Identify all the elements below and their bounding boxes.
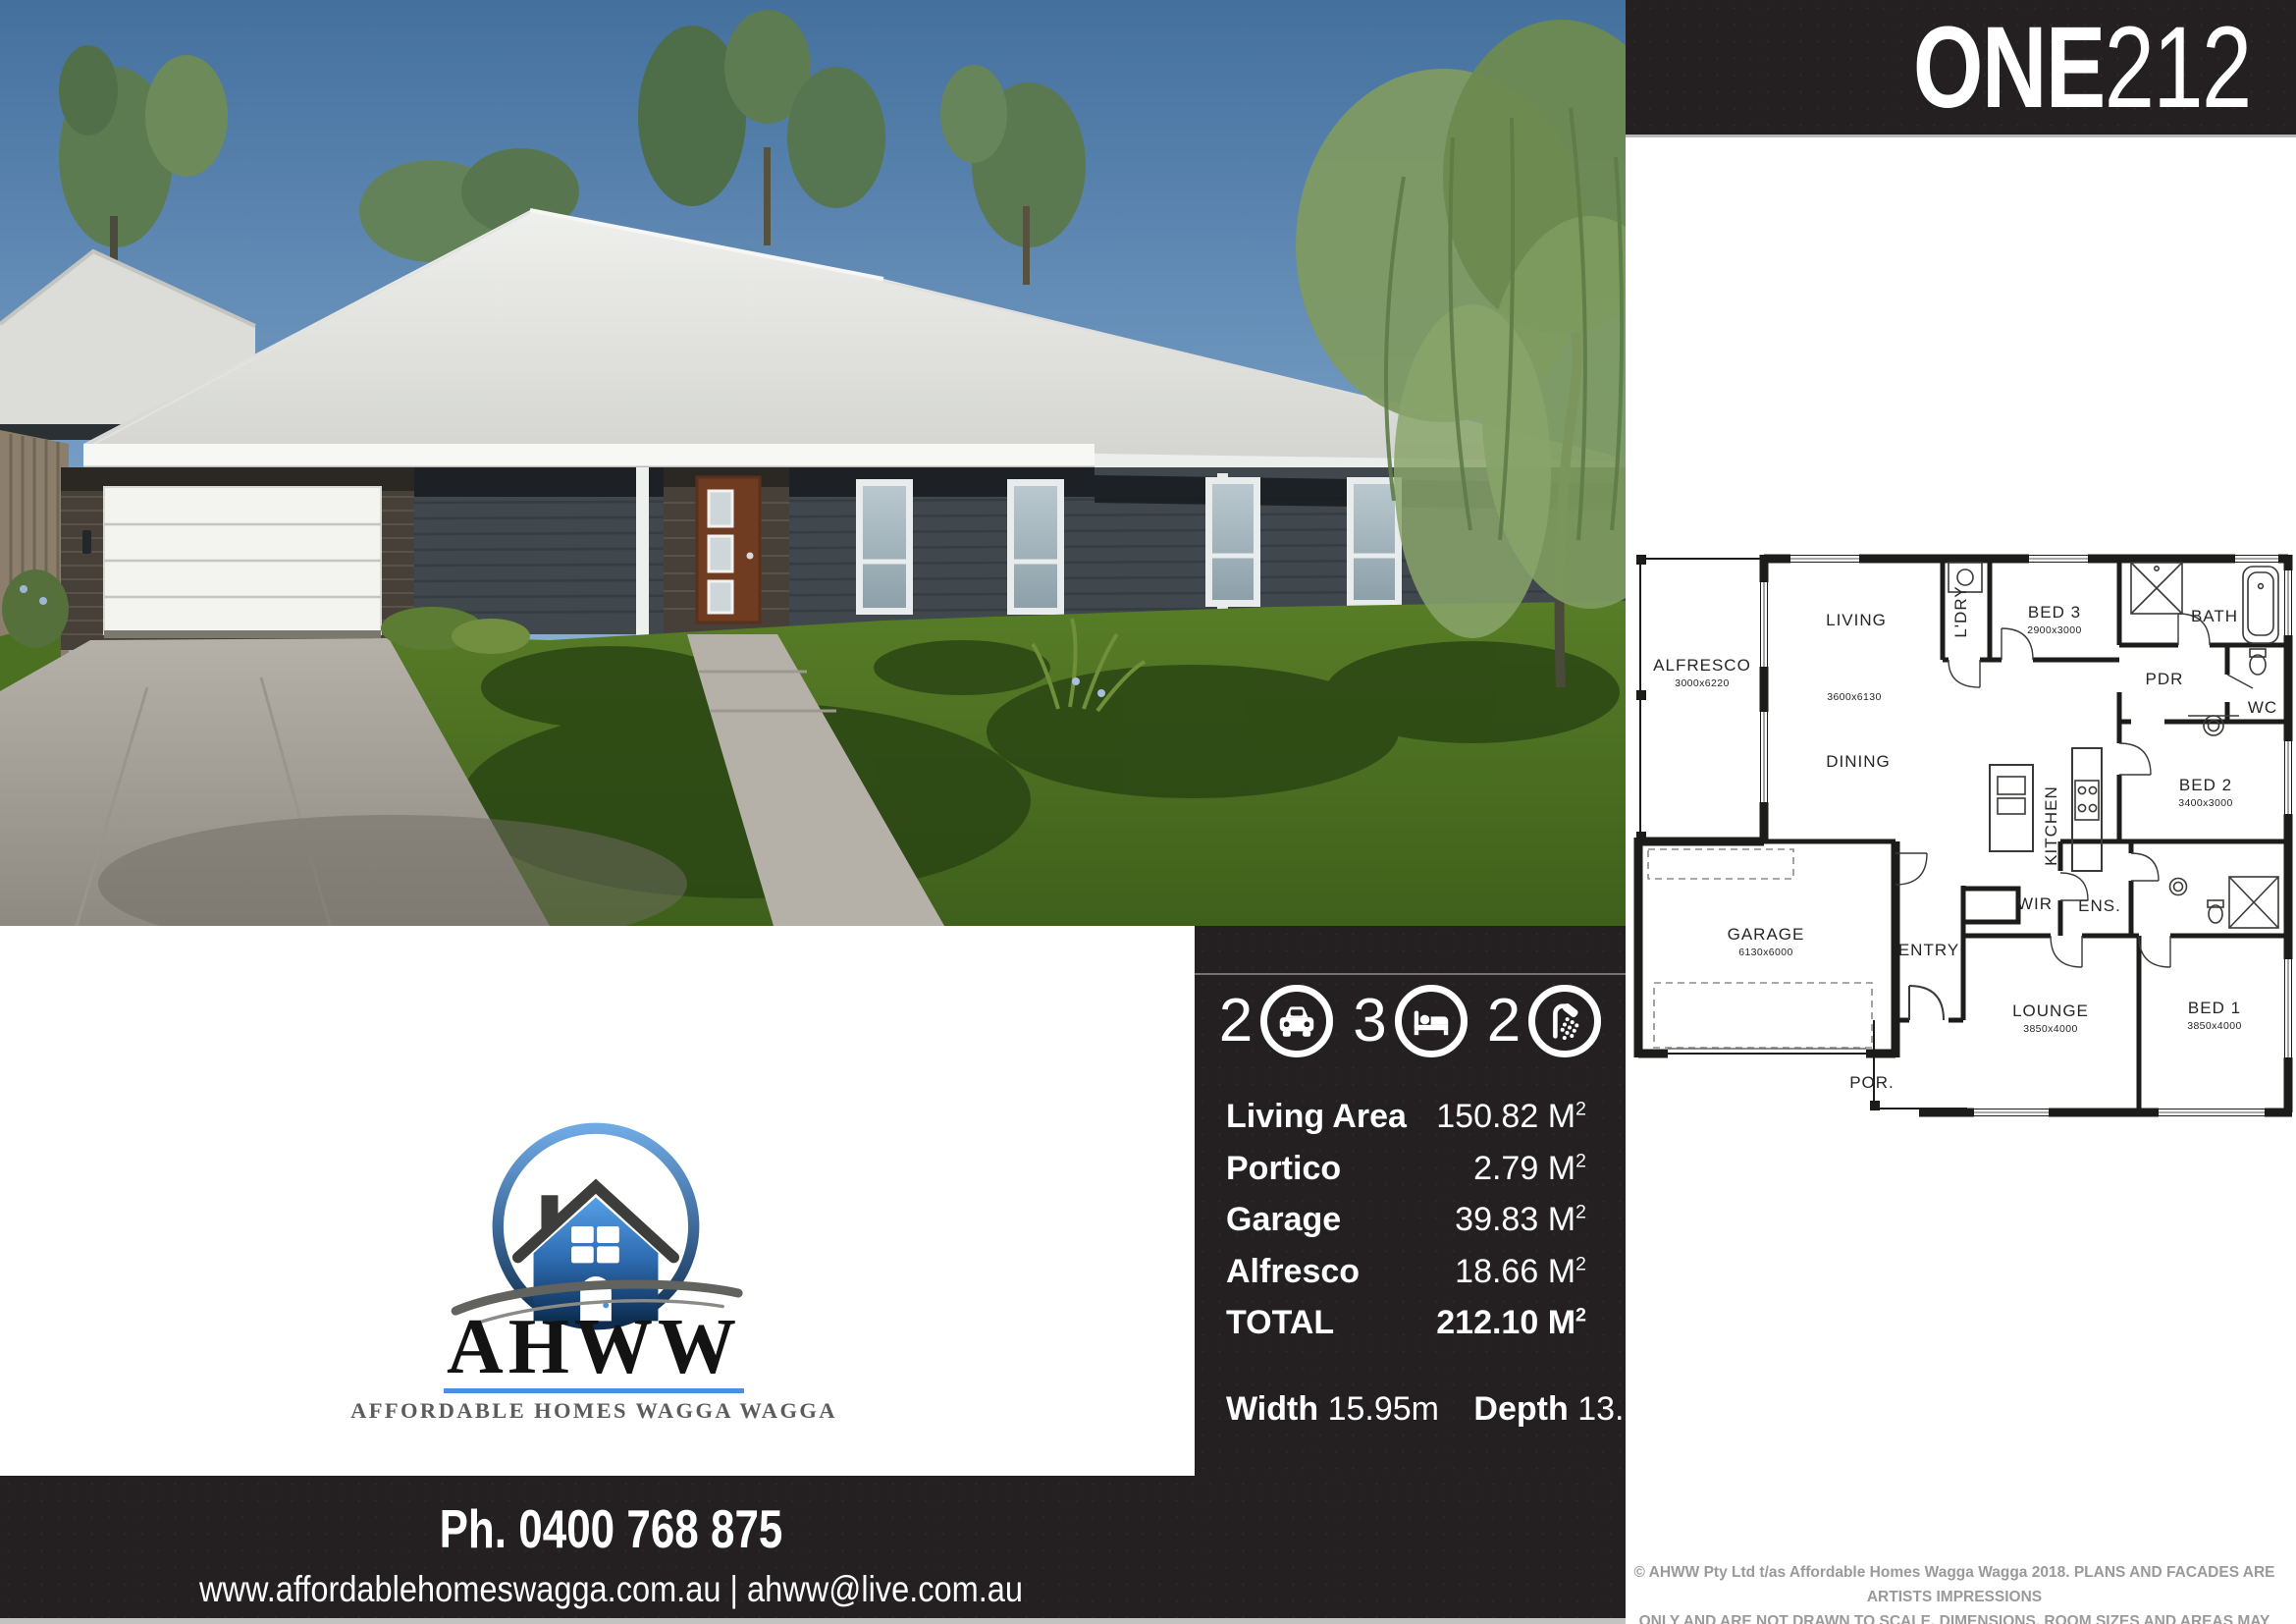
- room-dims-living: 3600x6130: [1827, 691, 1882, 703]
- room-label-wc: WC: [2248, 698, 2277, 717]
- room-dims-bed1: 3850x4000: [2187, 1020, 2242, 1032]
- room-dims-lounge: 3850x4000: [2023, 1023, 2078, 1035]
- room-label-pdr: PDR: [2146, 670, 2184, 688]
- width-label: Width: [1226, 1390, 1318, 1428]
- room-label-living: LIVING: [1826, 611, 1887, 629]
- spec-row-total: TOTAL 212.10 M2: [1226, 1302, 1586, 1344]
- plan-title-bold: ONE: [1913, 3, 2105, 133]
- shower-icon: [1528, 985, 1601, 1057]
- room-label-dining: DINING: [1826, 752, 1891, 771]
- house-photo: [0, 0, 1626, 926]
- stat-cars: 2: [1219, 985, 1333, 1057]
- legal-disclaimer: © AHWW Pty Ltd t/as Affordable Homes Wag…: [1629, 1561, 2280, 1624]
- room-label-bed1: BED 1: [2188, 999, 2241, 1017]
- footer-contact: Ph. 0400 768 875 www.affordablehomeswagg…: [0, 1476, 1222, 1610]
- legal-line-1: © AHWW Pty Ltd t/as Affordable Homes Wag…: [1629, 1561, 2280, 1610]
- ahww-logo-icon: [429, 1119, 763, 1333]
- plan-title-light: 212: [2105, 3, 2251, 133]
- garage-door: [104, 487, 381, 638]
- room-dims-bed2: 3400x3000: [2178, 797, 2233, 809]
- spec-row-alfresco: Alfresco 18.66 M2: [1226, 1251, 1586, 1293]
- area-specs: Living Area 150.82 M2 Portico 2.79 M2 Ga…: [1195, 1096, 1626, 1429]
- phone-number: Ph. 0400 768 875: [123, 1499, 1100, 1559]
- stat-baths-count: 2: [1487, 991, 1521, 1052]
- feature-stats: 2 3: [1195, 979, 1626, 1063]
- room-label-alfresco: ALFRESCO: [1653, 656, 1751, 675]
- car-icon: [1260, 985, 1333, 1057]
- spec-row-living-area: Living Area 150.82 M2: [1226, 1096, 1586, 1138]
- room-label-lounge: LOUNGE: [2012, 1001, 2089, 1020]
- floor-plan: ALFRESCO 3000x6220 LIVING 3600x6130 DINI…: [1629, 547, 2296, 1121]
- room-label-bed2: BED 2: [2179, 776, 2232, 794]
- room-label-entry: ENTRY: [1898, 941, 1959, 959]
- room-label-bath: BATH: [2191, 607, 2238, 625]
- spec-row-portico: Portico 2.79 M2: [1226, 1148, 1586, 1190]
- website-email: www.affordablehomeswagga.com.au | ahww@l…: [74, 1569, 1149, 1610]
- bottom-edge-strip: [0, 1618, 1626, 1624]
- footer-bar: Ph. 0400 768 875 www.affordablehomeswagg…: [0, 1476, 1626, 1618]
- wall-lamp: [82, 530, 91, 554]
- room-dims-alfresco: 3000x6220: [1675, 677, 1730, 689]
- room-label-bed3: BED 3: [2028, 603, 2081, 622]
- room-label-porch: POR.: [1849, 1073, 1895, 1092]
- fascia: [83, 444, 1095, 467]
- room-label-garage: GARAGE: [1728, 925, 1805, 944]
- bed-icon: [1395, 985, 1468, 1057]
- title-banner: ONE212: [1626, 0, 2296, 137]
- brand-name: AHWW: [0, 1308, 1188, 1386]
- width-value: 15.95m: [1328, 1390, 1439, 1428]
- brand-tagline: AFFORDABLE HOMES WAGGA WAGGA: [0, 1398, 1188, 1424]
- porch-post: [636, 467, 649, 636]
- room-label-ldry: L'DRY: [1951, 585, 1970, 637]
- brochure-page: ONE212: [0, 0, 2296, 1624]
- plan-title: ONE212: [1913, 10, 2251, 126]
- room-dims-garage: 6130x6000: [1738, 947, 1793, 958]
- brand-divider: [444, 1388, 744, 1393]
- depth-value: 13.69m: [1577, 1390, 1688, 1428]
- stat-cars-count: 2: [1219, 991, 1253, 1052]
- spec-row-garage: Garage 39.83 M2: [1226, 1199, 1586, 1241]
- stat-beds-count: 3: [1353, 991, 1386, 1052]
- stat-baths: 2: [1487, 985, 1601, 1057]
- porch-outline: [1874, 1020, 1967, 1109]
- spec-panel-divider: [1195, 973, 1626, 975]
- room-label-kitchen: KITCHEN: [2042, 785, 2060, 866]
- overall-dimensions: Width 15.95m Depth 13.69m: [1226, 1390, 1586, 1429]
- room-dims-bed3: 2900x3000: [2027, 624, 2082, 636]
- depth-label: Depth: [1473, 1390, 1568, 1428]
- room-label-wir: WIR: [2017, 894, 2053, 913]
- alfresco-outline: [1636, 555, 1764, 841]
- legal-line-2: ONLY AND ARE NOT DRAWN TO SCALE. DIMENSI…: [1629, 1610, 2280, 1624]
- room-label-ens: ENS.: [2078, 896, 2121, 915]
- front-door: [697, 477, 760, 623]
- stat-beds: 3: [1353, 985, 1467, 1057]
